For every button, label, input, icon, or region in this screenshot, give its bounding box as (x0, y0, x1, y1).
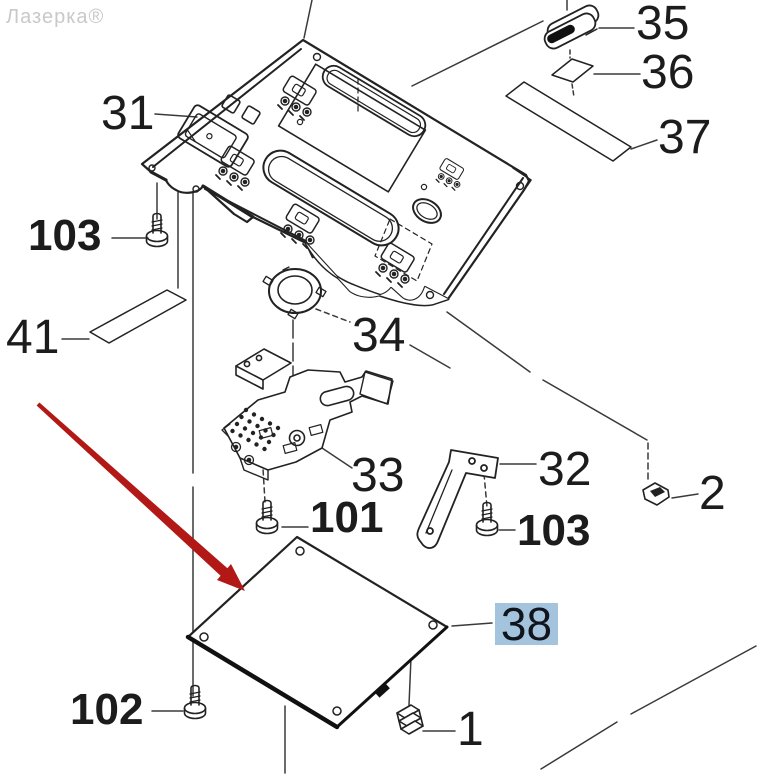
part-label-38-highlighted[interactable]: 38 (495, 603, 558, 645)
shop-watermark: Лазерка® (6, 6, 104, 29)
red-arrow (37, 403, 245, 592)
pad-35-drawing (542, 3, 601, 52)
part-label-2[interactable]: 2 (699, 470, 726, 518)
part-label-103-right[interactable]: 103 (517, 509, 590, 553)
label-36-drawing (552, 59, 593, 82)
part-label-34[interactable]: 34 (352, 312, 405, 360)
part-label-102[interactable]: 102 (70, 688, 143, 732)
part-label-1[interactable]: 1 (457, 706, 484, 754)
clip-1-drawing (397, 705, 423, 734)
screw-102-drawing (185, 686, 206, 719)
part-label-36[interactable]: 36 (641, 49, 694, 97)
part-label-31[interactable]: 31 (101, 90, 154, 138)
part-label-35[interactable]: 35 (636, 0, 689, 48)
part-label-41[interactable]: 41 (6, 314, 59, 362)
part-label-32[interactable]: 32 (538, 446, 591, 494)
screw-103-right-drawing (477, 503, 498, 536)
label-37-drawing (506, 82, 631, 161)
clip-2-drawing (643, 483, 669, 505)
panel-31-drawing (142, 40, 531, 305)
part-label-101[interactable]: 101 (310, 496, 383, 540)
plate-38-drawing (188, 537, 447, 727)
screw-101-drawing (257, 501, 278, 534)
label-41-drawing (90, 290, 186, 343)
bracket-32-drawing (417, 450, 498, 548)
parts-diagram-page: Лазерка® 31 35 36 37 103 41 34 33 101 32… (0, 0, 766, 780)
part-label-103-left[interactable]: 103 (28, 214, 101, 258)
part-label-37[interactable]: 37 (658, 114, 711, 162)
speaker-34-drawing (263, 267, 326, 319)
